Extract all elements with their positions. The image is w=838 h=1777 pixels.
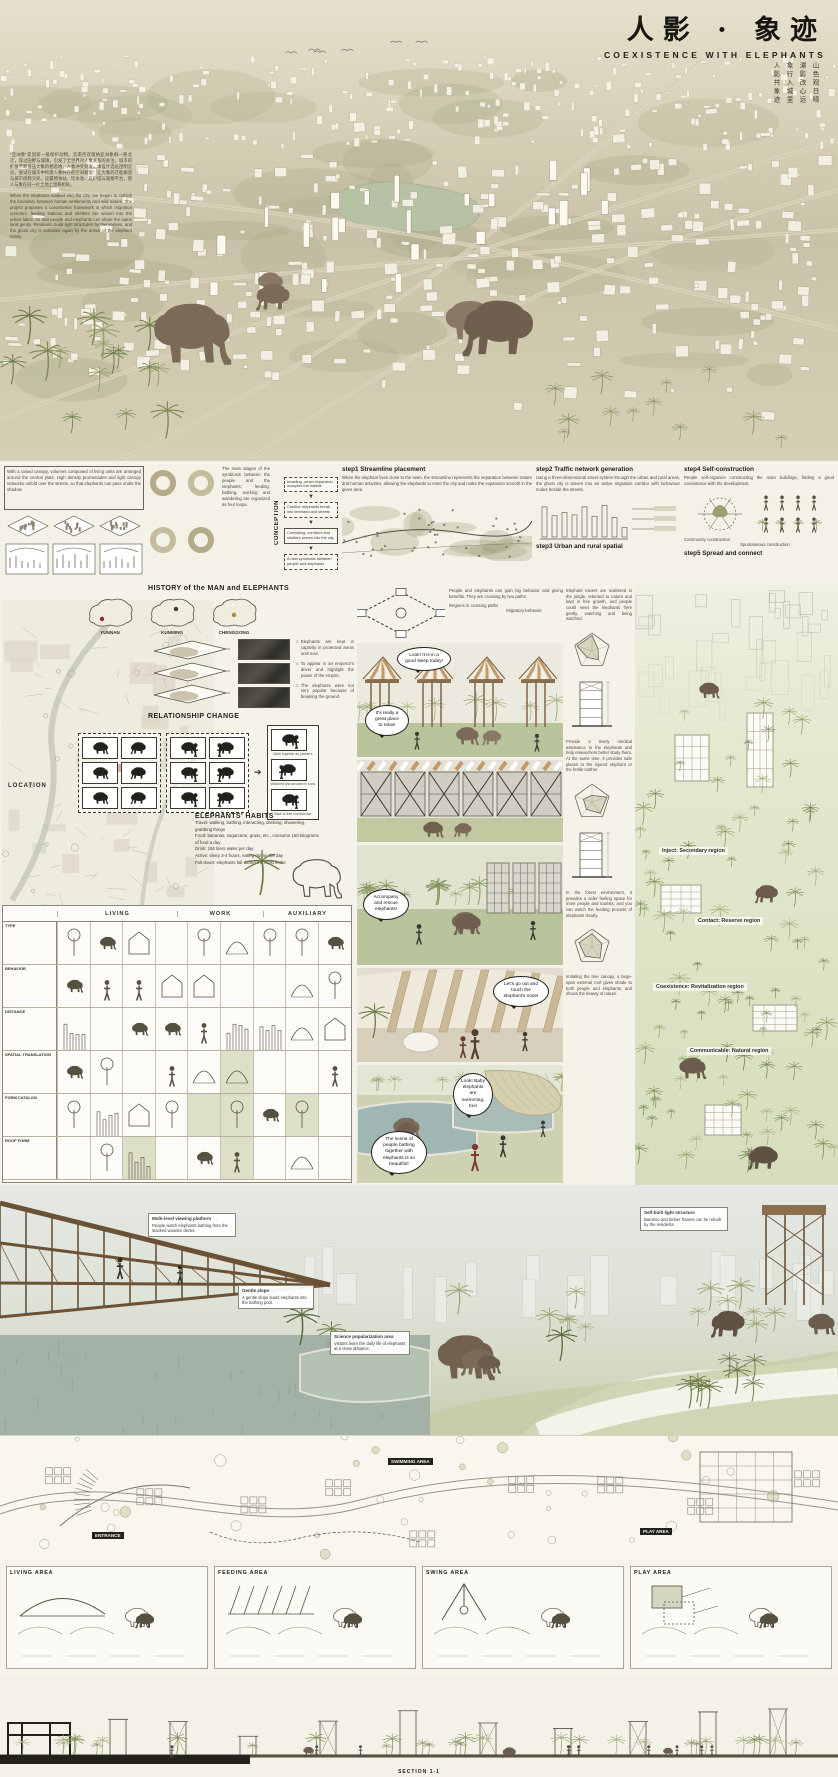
poem-column: 人影共象迹 bbox=[771, 62, 781, 105]
loop-ring bbox=[150, 527, 176, 553]
vertical-poem: 山色观日晴 潭影改心远 象行入城里 人影共象迹 bbox=[771, 62, 820, 105]
map-yunnan: YUNNAN bbox=[84, 595, 136, 635]
speech-bubble: The scene of people bathing together wit… bbox=[371, 1131, 427, 1174]
mid-diagram-band: People and elephants can gain big behavi… bbox=[357, 588, 563, 638]
step3-title: step3 Urban and rural spatial bbox=[536, 543, 680, 550]
step1-map-diagram bbox=[342, 503, 532, 561]
radar-diagram bbox=[566, 923, 618, 969]
rendering-stilt-pavilions: Look! It is in a good sleep today! It's … bbox=[357, 643, 563, 757]
relationship-cell bbox=[209, 787, 245, 809]
relationship-cell bbox=[271, 789, 307, 811]
history-photos bbox=[238, 639, 290, 711]
plan-label-play: PLAY AREA bbox=[640, 1528, 672, 1535]
speech-bubble: Look! Baby elephants are swimming, too! bbox=[453, 1073, 493, 1116]
forest-panel: Inject: Secondary region Contact: Reserv… bbox=[635, 585, 838, 1185]
tower-diagram-sidebar: Elephant towers are scattered in the jun… bbox=[566, 588, 632, 997]
relationship-grid: ➔ Work together as partnersWatched and a… bbox=[78, 725, 319, 820]
region-label-contact: Contact: Reserve region bbox=[695, 917, 763, 925]
speech-bubble: It's really a great place to relax! bbox=[365, 705, 409, 736]
region-label-coexistence: Coexistence: Revitalization region bbox=[653, 983, 747, 991]
middle-section: LOCATION YUNNAN KUNMING CHENGGONG HISTOR… bbox=[0, 585, 838, 1185]
poster-title-chinese: 人影 · 象迹 bbox=[604, 8, 826, 47]
site-plan: ENTRANCE SWIMMING AREA PLAY AREA bbox=[0, 1435, 838, 1560]
history-header: HISTORY of the MAN and ELEPHANTS bbox=[148, 585, 289, 592]
detail-panel-feeding: FEEDING AREA bbox=[214, 1566, 416, 1669]
relationship-cell bbox=[121, 787, 157, 809]
annotation-box: Self-built light structure Bamboo and ti… bbox=[640, 1207, 728, 1231]
intro-text-block: “亚洲象”是国家一级保护动物。云南西双版纳亚洲象群一路北迁，穿过田野与城镇，引发… bbox=[10, 148, 132, 245]
step4-title: step4 Self-construction bbox=[684, 466, 834, 473]
detail-panels: LIVING AREA FEEDING AREA SWING AREA PLAY… bbox=[0, 1560, 838, 1675]
rendering-facade bbox=[357, 760, 563, 842]
poem-column: 象行入城里 bbox=[784, 62, 794, 105]
title-block: 人影 · 象迹 COEXISTENCE WITH ELEPHANTS bbox=[604, 8, 826, 60]
radar-diagram bbox=[566, 627, 618, 673]
tower-note: In the forest environment, it provides a… bbox=[566, 890, 632, 918]
intro-english: When the elephants walked into the city,… bbox=[10, 193, 132, 240]
relationship-group-present bbox=[166, 733, 249, 813]
step4-legend-1: Community construction bbox=[684, 537, 730, 548]
rendering-rescue-lawn: Accompany and rescue elephants! bbox=[357, 845, 563, 965]
behaviour-matrix-table: LIVINGWORKAUXILIARYTYPEBEHAVIORDISTANCES… bbox=[2, 905, 352, 1183]
history-layers-diagram bbox=[146, 637, 232, 709]
map-kunming: KUNMING bbox=[146, 595, 198, 635]
plan-label-entrance: ENTRANCE bbox=[92, 1532, 124, 1539]
concept-steps-strip: With a raised canopy, volumes composed o… bbox=[0, 460, 838, 585]
step4-desc: People self-organize constructing the ma… bbox=[684, 475, 834, 491]
loop-ring bbox=[150, 470, 176, 496]
panel-conception: CONCEPTION Invading: urban expansion occ… bbox=[274, 466, 338, 580]
step4-legend-2: Spontaneous construction bbox=[740, 542, 790, 548]
loop-ring bbox=[188, 527, 214, 553]
speech-bubble: Accompany and rescue elephants! bbox=[363, 889, 409, 920]
step2-title: step2 Traffic network generation bbox=[536, 466, 680, 473]
relationship-group-past bbox=[78, 733, 161, 813]
history-bullets: ○Elephants are kept in captivity in prot… bbox=[296, 639, 354, 704]
matrix-row-header: DISTANCE bbox=[3, 1008, 57, 1050]
historic-photo bbox=[238, 639, 290, 660]
flow-arrow: ▼ bbox=[284, 521, 338, 525]
step1-desc: When the elephant lives close to the tow… bbox=[342, 475, 532, 503]
relationship-cell bbox=[121, 762, 157, 784]
elevation-label: SECTION 1-1 bbox=[398, 1769, 440, 1775]
matrix-col-header: LIVING bbox=[57, 911, 177, 917]
detail-panel-living: LIVING AREA bbox=[6, 1566, 208, 1669]
annotation-box: Gentle slope A gentle slope leads elepha… bbox=[238, 1285, 314, 1309]
flow-box: A new symbiosis between people and eleph… bbox=[284, 554, 338, 570]
region-maps-row: YUNNAN KUNMING CHENGGONG bbox=[84, 595, 260, 635]
mid-diagram-cap1: Regions in crossing paths bbox=[449, 603, 498, 614]
annotation-box: Science popularization area Visitors lea… bbox=[330, 1331, 410, 1355]
flow-arrow: ▼ bbox=[284, 547, 338, 551]
relationship-cell bbox=[271, 729, 307, 751]
matrix-col-header: AUXILIARY bbox=[263, 911, 351, 917]
step5-title: step5 Spread and connect bbox=[684, 550, 834, 557]
main-perspective-rendering: Multi-level viewing platform People watc… bbox=[0, 1185, 838, 1435]
matrix-row-header: FORM CATALOG bbox=[3, 1094, 57, 1136]
region-label-inject: Inject: Secondary region bbox=[659, 847, 728, 855]
relationship-cell bbox=[82, 787, 118, 809]
mid-diagram-note: People and elephants can gain big behavi… bbox=[449, 588, 563, 600]
aerial-masterplan-rendering: 人影 · 象迹 COEXISTENCE WITH ELEPHANTS 山色观日晴… bbox=[0, 0, 838, 460]
relationship-cell bbox=[170, 787, 206, 809]
poster-title-english: COEXISTENCE WITH ELEPHANTS bbox=[604, 50, 826, 60]
tower-note: Provide a timely medical assistance to t… bbox=[566, 739, 632, 773]
competition-poster: 人影 · 象迹 COEXISTENCE WITH ELEPHANTS 山色观日晴… bbox=[0, 0, 838, 1777]
location-label: LOCATION bbox=[8, 783, 47, 789]
relationship-group-future: Work together as partnersWatched and amu… bbox=[267, 725, 320, 820]
massing-note: With a raised canopy, volumes composed o… bbox=[4, 466, 144, 510]
relationship-cell bbox=[170, 737, 206, 759]
flow-box: Invading: urban expansion occupies the h… bbox=[284, 477, 338, 493]
relationship-arrow: ➔ bbox=[254, 767, 262, 778]
rendering-interior: Let's go out and touch the elephant's no… bbox=[357, 968, 563, 1062]
loop-ring bbox=[188, 470, 214, 496]
panel-loop-diagrams: The main stages of the symbiosis between… bbox=[148, 466, 270, 580]
historic-photo bbox=[238, 663, 290, 684]
step2-sketch bbox=[536, 499, 680, 543]
step1-title: step1 Streamline placement bbox=[342, 466, 532, 473]
matrix-row-header: ROOF FORM bbox=[3, 1137, 57, 1179]
habits-header: ELEPHANTS' HABITS bbox=[195, 813, 323, 820]
relationship-cell bbox=[121, 737, 157, 759]
tower-section-diagram bbox=[566, 678, 618, 734]
long-elevation-drawing: SECTION 1-1 bbox=[0, 1675, 838, 1777]
relationship-cell bbox=[209, 762, 245, 784]
step2-desc: Using a three-dimensional street system … bbox=[536, 475, 680, 499]
flow-arrow: ▼ bbox=[284, 495, 338, 499]
detail-panel-swing: SWING AREA bbox=[422, 1566, 624, 1669]
tower-section-diagram bbox=[566, 829, 618, 885]
relationship-cell bbox=[82, 762, 118, 784]
matrix-row-header: SPATIAL TRANSLATION bbox=[3, 1051, 57, 1093]
matrix-col-header: WORK bbox=[177, 911, 263, 917]
rings-note: The main stages of the symbiosis between… bbox=[222, 466, 270, 580]
flow-box: Conflict: elephants break into farmland … bbox=[284, 502, 338, 518]
detail-panel-play: PLAY AREA bbox=[630, 1566, 832, 1669]
elephant-banana-sketch bbox=[244, 837, 354, 899]
forest-intro: Elephant towers are scattered in the jun… bbox=[566, 588, 632, 622]
conception-label: CONCEPTION bbox=[274, 500, 280, 545]
loop-rings bbox=[148, 466, 218, 580]
rendering-pool: Look! Baby elephants are swimming, too! … bbox=[357, 1065, 563, 1183]
relationship-cell bbox=[82, 737, 118, 759]
radar-diagram bbox=[566, 778, 618, 824]
relationship-cell bbox=[209, 737, 245, 759]
intro-chinese: “亚洲象”是国家一级保护动物。云南西双版纳亚洲象群一路北迁，穿过田野与城镇，引发… bbox=[10, 152, 132, 188]
region-label-communicable: Communicable: Natural region bbox=[687, 1047, 771, 1055]
conception-flowchart: Invading: urban expansion occupies the h… bbox=[284, 477, 338, 570]
matrix-row-header: TYPE bbox=[3, 922, 57, 964]
historic-photo bbox=[238, 687, 290, 708]
tower-note: Imitating the tree canopy, a large-span … bbox=[566, 974, 632, 997]
poem-column: 潭影改心远 bbox=[797, 62, 807, 105]
relationship-cell bbox=[170, 762, 206, 784]
poem-column: 山色观日晴 bbox=[810, 62, 820, 105]
map-chenggong: CHENGGONG bbox=[208, 595, 260, 635]
path-diamond-diagram bbox=[357, 588, 445, 638]
relationship-cell bbox=[271, 759, 307, 781]
panel-step4-5: step4 Self-construction People self-orga… bbox=[684, 466, 834, 580]
panel-step2-3: step2 Traffic network generation Using a… bbox=[536, 466, 680, 580]
annotation-box: Multi-level viewing platform People watc… bbox=[148, 1213, 236, 1237]
flow-box: Coexisting: corridors and shelters woven… bbox=[284, 528, 338, 544]
speech-bubble: Let's go out and touch the elephant's no… bbox=[493, 976, 549, 1007]
panel-massing-diagrams: With a raised canopy, volumes composed o… bbox=[4, 466, 144, 580]
plan-label-swimming: SWIMMING AREA bbox=[388, 1458, 433, 1465]
step4-sketch bbox=[684, 491, 834, 537]
mid-diagram-cap2: Migratory behavior bbox=[506, 608, 542, 614]
panel-step1: step1 Streamline placement When the elep… bbox=[342, 466, 532, 580]
relationship-header: RELATIONSHIP CHANGE bbox=[148, 713, 239, 720]
axon-diagrams bbox=[4, 510, 144, 576]
matrix-row-header: BEHAVIOR bbox=[3, 965, 57, 1007]
